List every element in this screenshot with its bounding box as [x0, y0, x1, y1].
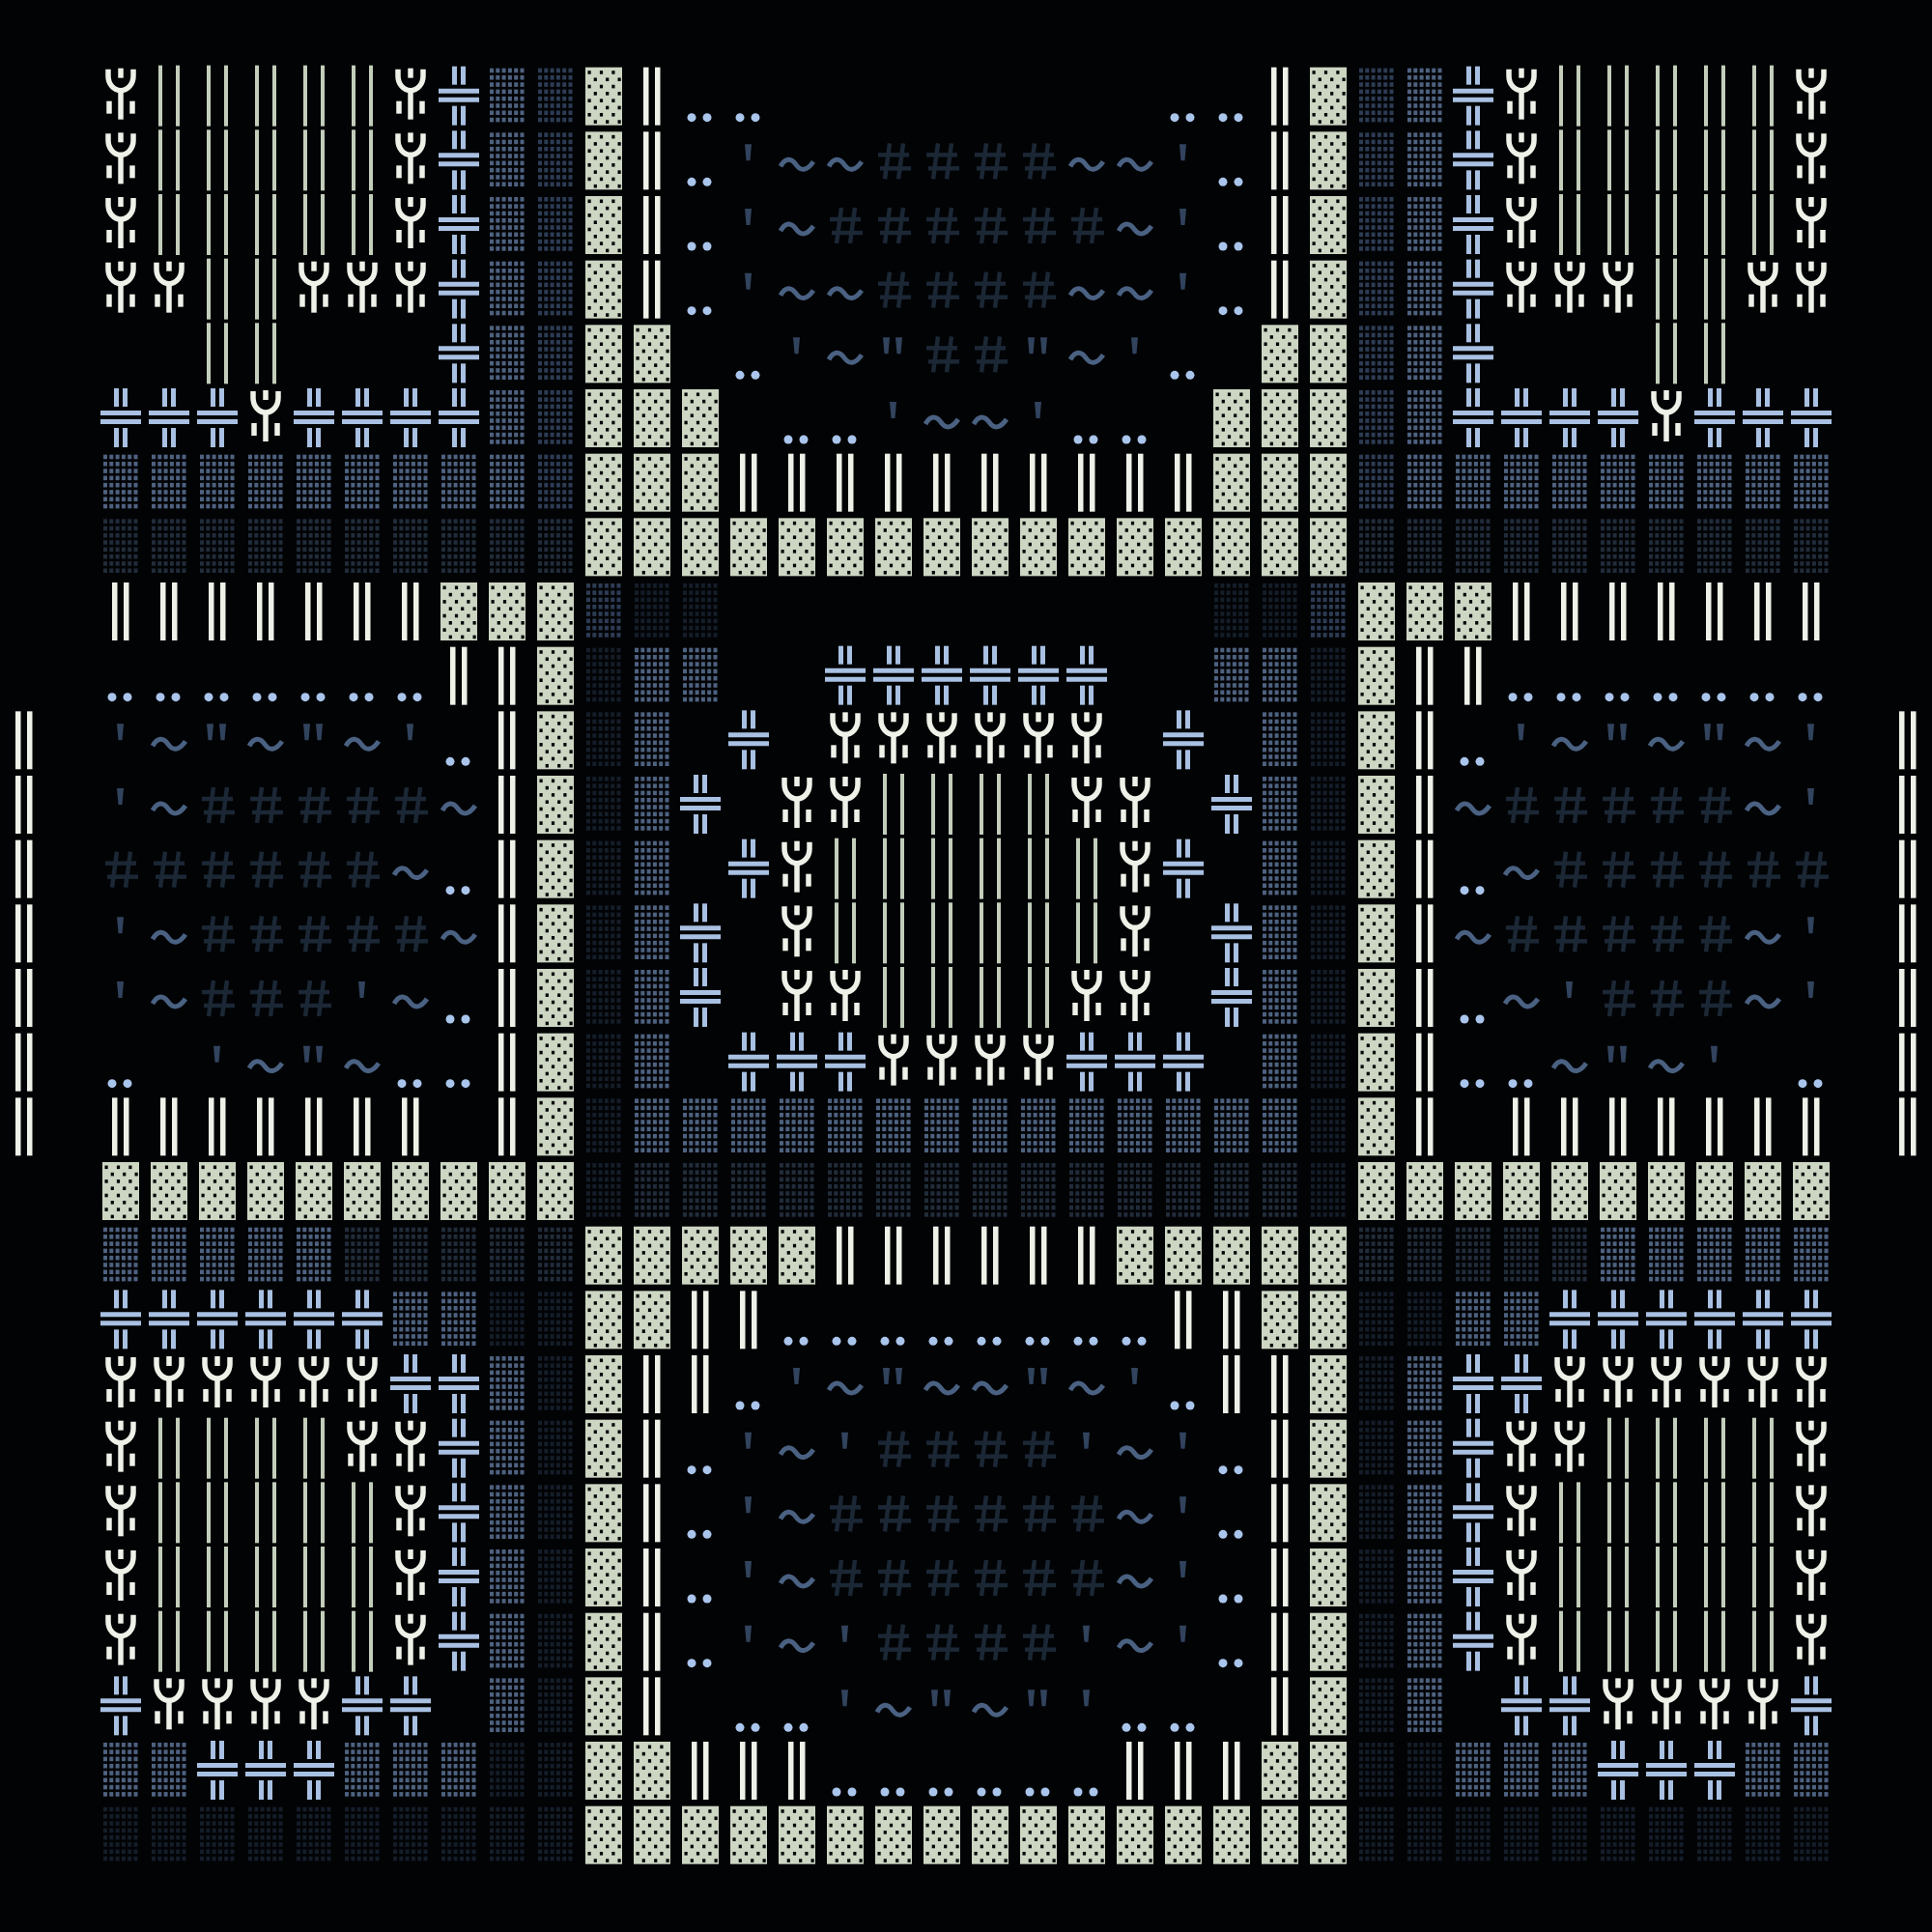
- cell-block: [730, 518, 767, 576]
- cell-block: [1310, 1742, 1347, 1800]
- cell-block: [151, 1162, 187, 1220]
- cell-block: [1358, 647, 1395, 705]
- cell-block: [875, 1806, 912, 1864]
- cell-block: [1310, 1548, 1347, 1606]
- cell-block: [392, 1162, 429, 1220]
- cell-block: [537, 582, 574, 640]
- cell-block: [537, 904, 574, 962]
- cell-block: [1117, 518, 1153, 576]
- cell-block: [199, 1162, 236, 1220]
- cell-block: [585, 1227, 622, 1285]
- cell-block: [1020, 518, 1057, 576]
- cell-block: [585, 325, 622, 383]
- cell-block: [585, 1420, 622, 1478]
- cell-block: [1213, 389, 1250, 447]
- cell-block: [634, 1742, 670, 1800]
- cell-block: [1310, 454, 1347, 512]
- cell-block: [1310, 196, 1347, 254]
- cell-block: [489, 1162, 526, 1220]
- cell-block: [682, 1806, 719, 1864]
- cell-block: [634, 1291, 670, 1349]
- cell-block: [247, 1162, 284, 1220]
- cell-block: [440, 582, 477, 640]
- cell-block: [1213, 1227, 1250, 1285]
- cell-block: [1068, 518, 1105, 576]
- cell-block: [1262, 1227, 1298, 1285]
- cell-block: [779, 1806, 815, 1864]
- cell-block: [875, 518, 912, 576]
- cell-block: [1262, 518, 1298, 576]
- cell-block: [1310, 518, 1347, 576]
- cell-block: [1358, 1034, 1395, 1092]
- cell-block: [585, 196, 622, 254]
- cell-block: [1455, 1162, 1492, 1220]
- cell-block: [1455, 582, 1492, 640]
- cell-block: [1310, 1613, 1347, 1671]
- cell-block: [634, 454, 670, 512]
- cell-block: [972, 518, 1009, 576]
- cell-block: [1020, 1806, 1057, 1864]
- cell-block: [1310, 325, 1347, 383]
- cell-block: [585, 454, 622, 512]
- cell-block: [1503, 1162, 1540, 1220]
- cell-block: [634, 1806, 670, 1864]
- cell-block: [1358, 904, 1395, 962]
- cell-block: [537, 1162, 574, 1220]
- cell-block: [585, 261, 622, 319]
- cell-block: [585, 1548, 622, 1606]
- cell-block: [1358, 582, 1395, 640]
- cell-block: [1262, 1291, 1298, 1349]
- cell-block: [1358, 969, 1395, 1027]
- cell-block: [1165, 1806, 1202, 1864]
- cell-block: [585, 1291, 622, 1349]
- cell-block: [537, 1097, 574, 1155]
- cell-block: [537, 776, 574, 834]
- cell-block: [585, 1355, 622, 1413]
- cell-block: [1262, 454, 1298, 512]
- cell-block: [344, 1162, 381, 1220]
- cell-block: [537, 647, 574, 705]
- cell-block: [1358, 711, 1395, 769]
- cell-block: [1310, 131, 1347, 189]
- cell-block: [585, 1742, 622, 1800]
- cell-block: [585, 68, 622, 126]
- cell-block: [923, 1806, 960, 1864]
- cell-block: [1262, 1806, 1298, 1864]
- cell-block: [1310, 1227, 1347, 1285]
- cell-block: [1600, 1162, 1636, 1220]
- cell-block: [1165, 1227, 1202, 1285]
- cell-block: [682, 518, 719, 576]
- cell-block: [1551, 1162, 1588, 1220]
- cell-block: [1117, 1806, 1153, 1864]
- cell-block: [1262, 1742, 1298, 1800]
- cell-block: [1213, 454, 1250, 512]
- cell-block: [1310, 1484, 1347, 1542]
- cell-block: [537, 840, 574, 898]
- cell-block: [730, 1806, 767, 1864]
- cell-block: [585, 1484, 622, 1542]
- ascii-art-canvas: [0, 0, 1932, 1932]
- cell-block: [1696, 1162, 1733, 1220]
- cell-block: [972, 1806, 1009, 1864]
- cell-block: [440, 1162, 477, 1220]
- cell-block: [1262, 325, 1298, 383]
- cell-block: [1310, 1355, 1347, 1413]
- cell-block: [1068, 1806, 1105, 1864]
- cell-block: [1358, 776, 1395, 834]
- cell-block: [779, 1227, 815, 1285]
- cell-block: [1310, 1291, 1347, 1349]
- cell-block: [1310, 1420, 1347, 1478]
- cell-block: [1262, 389, 1298, 447]
- cell-block: [1793, 1162, 1830, 1220]
- cell-block: [923, 518, 960, 576]
- cell-block: [1213, 1806, 1250, 1864]
- cell-block: [682, 454, 719, 512]
- cell-block: [537, 711, 574, 769]
- cell-block: [1310, 1806, 1347, 1864]
- cell-block: [682, 389, 719, 447]
- cell-block: [634, 325, 670, 383]
- background: [0, 0, 1932, 1932]
- cell-block: [827, 1806, 864, 1864]
- cell-block: [827, 518, 864, 576]
- cell-block: [585, 1613, 622, 1671]
- cell-block: [1358, 1097, 1395, 1155]
- cell-block: [1165, 518, 1202, 576]
- cell-block: [1406, 582, 1443, 640]
- cell-block: [489, 582, 526, 640]
- cell-block: [1406, 1162, 1443, 1220]
- cell-block: [585, 131, 622, 189]
- cell-block: [634, 518, 670, 576]
- cell-block: [537, 969, 574, 1027]
- cell-block: [1213, 518, 1250, 576]
- cell-block: [1745, 1162, 1781, 1220]
- cell-block: [585, 389, 622, 447]
- cell-block: [585, 1806, 622, 1864]
- cell-block: [779, 518, 815, 576]
- cell-block: [1358, 840, 1395, 898]
- cell-block: [1648, 1162, 1685, 1220]
- cell-block: [102, 1162, 139, 1220]
- cell-block: [1310, 389, 1347, 447]
- cell-block: [585, 1677, 622, 1735]
- ascii-art-svg: [0, 0, 1932, 1932]
- cell-block: [1310, 261, 1347, 319]
- cell-block: [1358, 1162, 1395, 1220]
- cell-block: [682, 1227, 719, 1285]
- cell-block: [634, 389, 670, 447]
- cell-block: [1310, 1677, 1347, 1735]
- cell-block: [634, 1227, 670, 1285]
- cell-block: [1310, 68, 1347, 126]
- cell-block: [537, 1034, 574, 1092]
- cell-block: [585, 518, 622, 576]
- cell-block: [1117, 1227, 1153, 1285]
- cell-block: [296, 1162, 332, 1220]
- cell-block: [730, 1227, 767, 1285]
